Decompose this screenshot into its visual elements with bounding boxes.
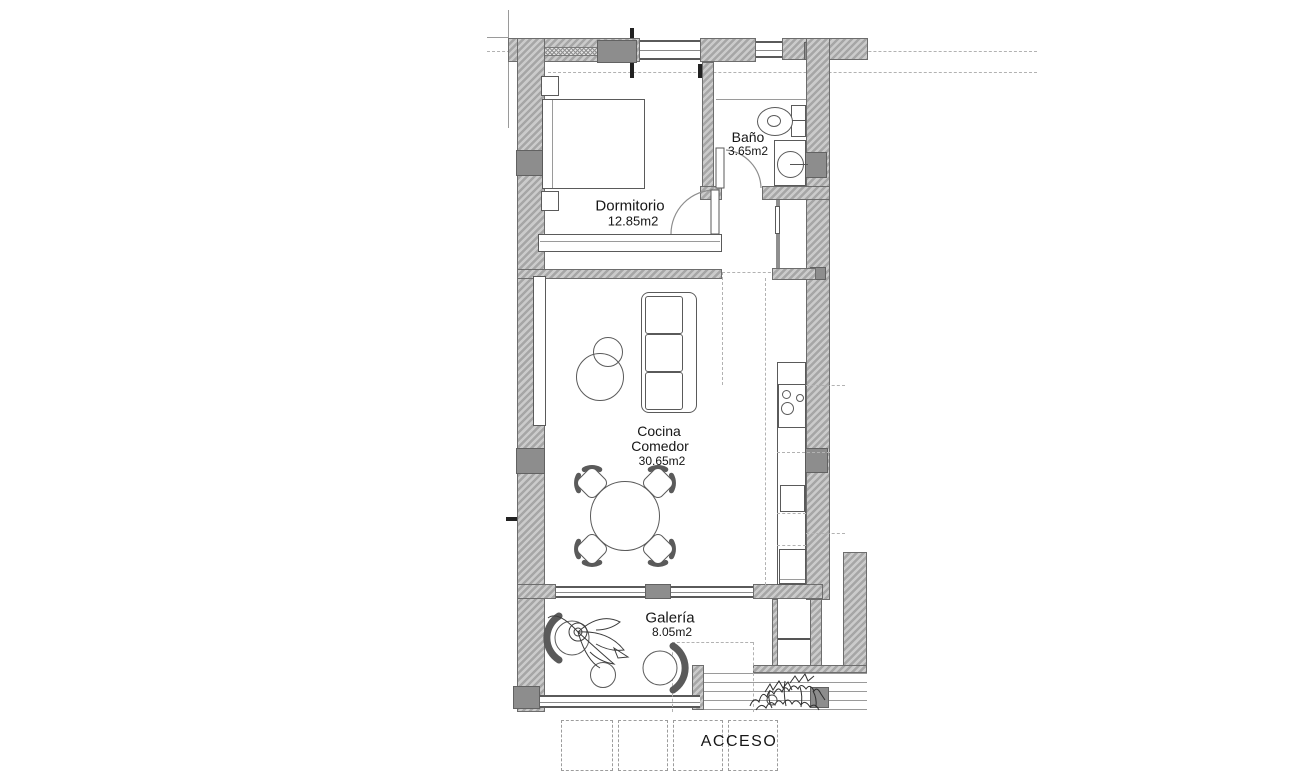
dining-chair <box>639 530 679 570</box>
plan-linework-overlay <box>0 0 1315 778</box>
bedroom-door-arc <box>671 190 715 234</box>
bathroom-door-leaf <box>716 148 724 188</box>
room-label-dormitorio: Dormitorio <box>595 199 664 214</box>
galeria-armchair <box>643 646 685 690</box>
room-label-comedor: Comedor <box>631 439 689 453</box>
room-area-galeria: 8.05m2 <box>652 626 692 638</box>
room-label-bano: Baño <box>732 130 765 144</box>
room-area-dormitorio: 12.85m2 <box>608 215 659 228</box>
room-label-cocina: Cocina <box>637 424 681 438</box>
dining-chair <box>571 530 611 570</box>
room-area-cocina-comedor: 30.65m2 <box>639 455 686 467</box>
entrance-label: ACCESO <box>701 734 778 750</box>
entrance-bush <box>750 674 825 710</box>
dining-chair <box>571 462 611 502</box>
bedroom-door-leaf <box>711 190 719 234</box>
floor-plan: Dormitorio 12.85m2 Baño 3.65m2 Cocina Co… <box>0 0 1315 778</box>
room-label-galeria: Galería <box>645 611 694 626</box>
room-area-bano: 3.65m2 <box>728 145 768 157</box>
